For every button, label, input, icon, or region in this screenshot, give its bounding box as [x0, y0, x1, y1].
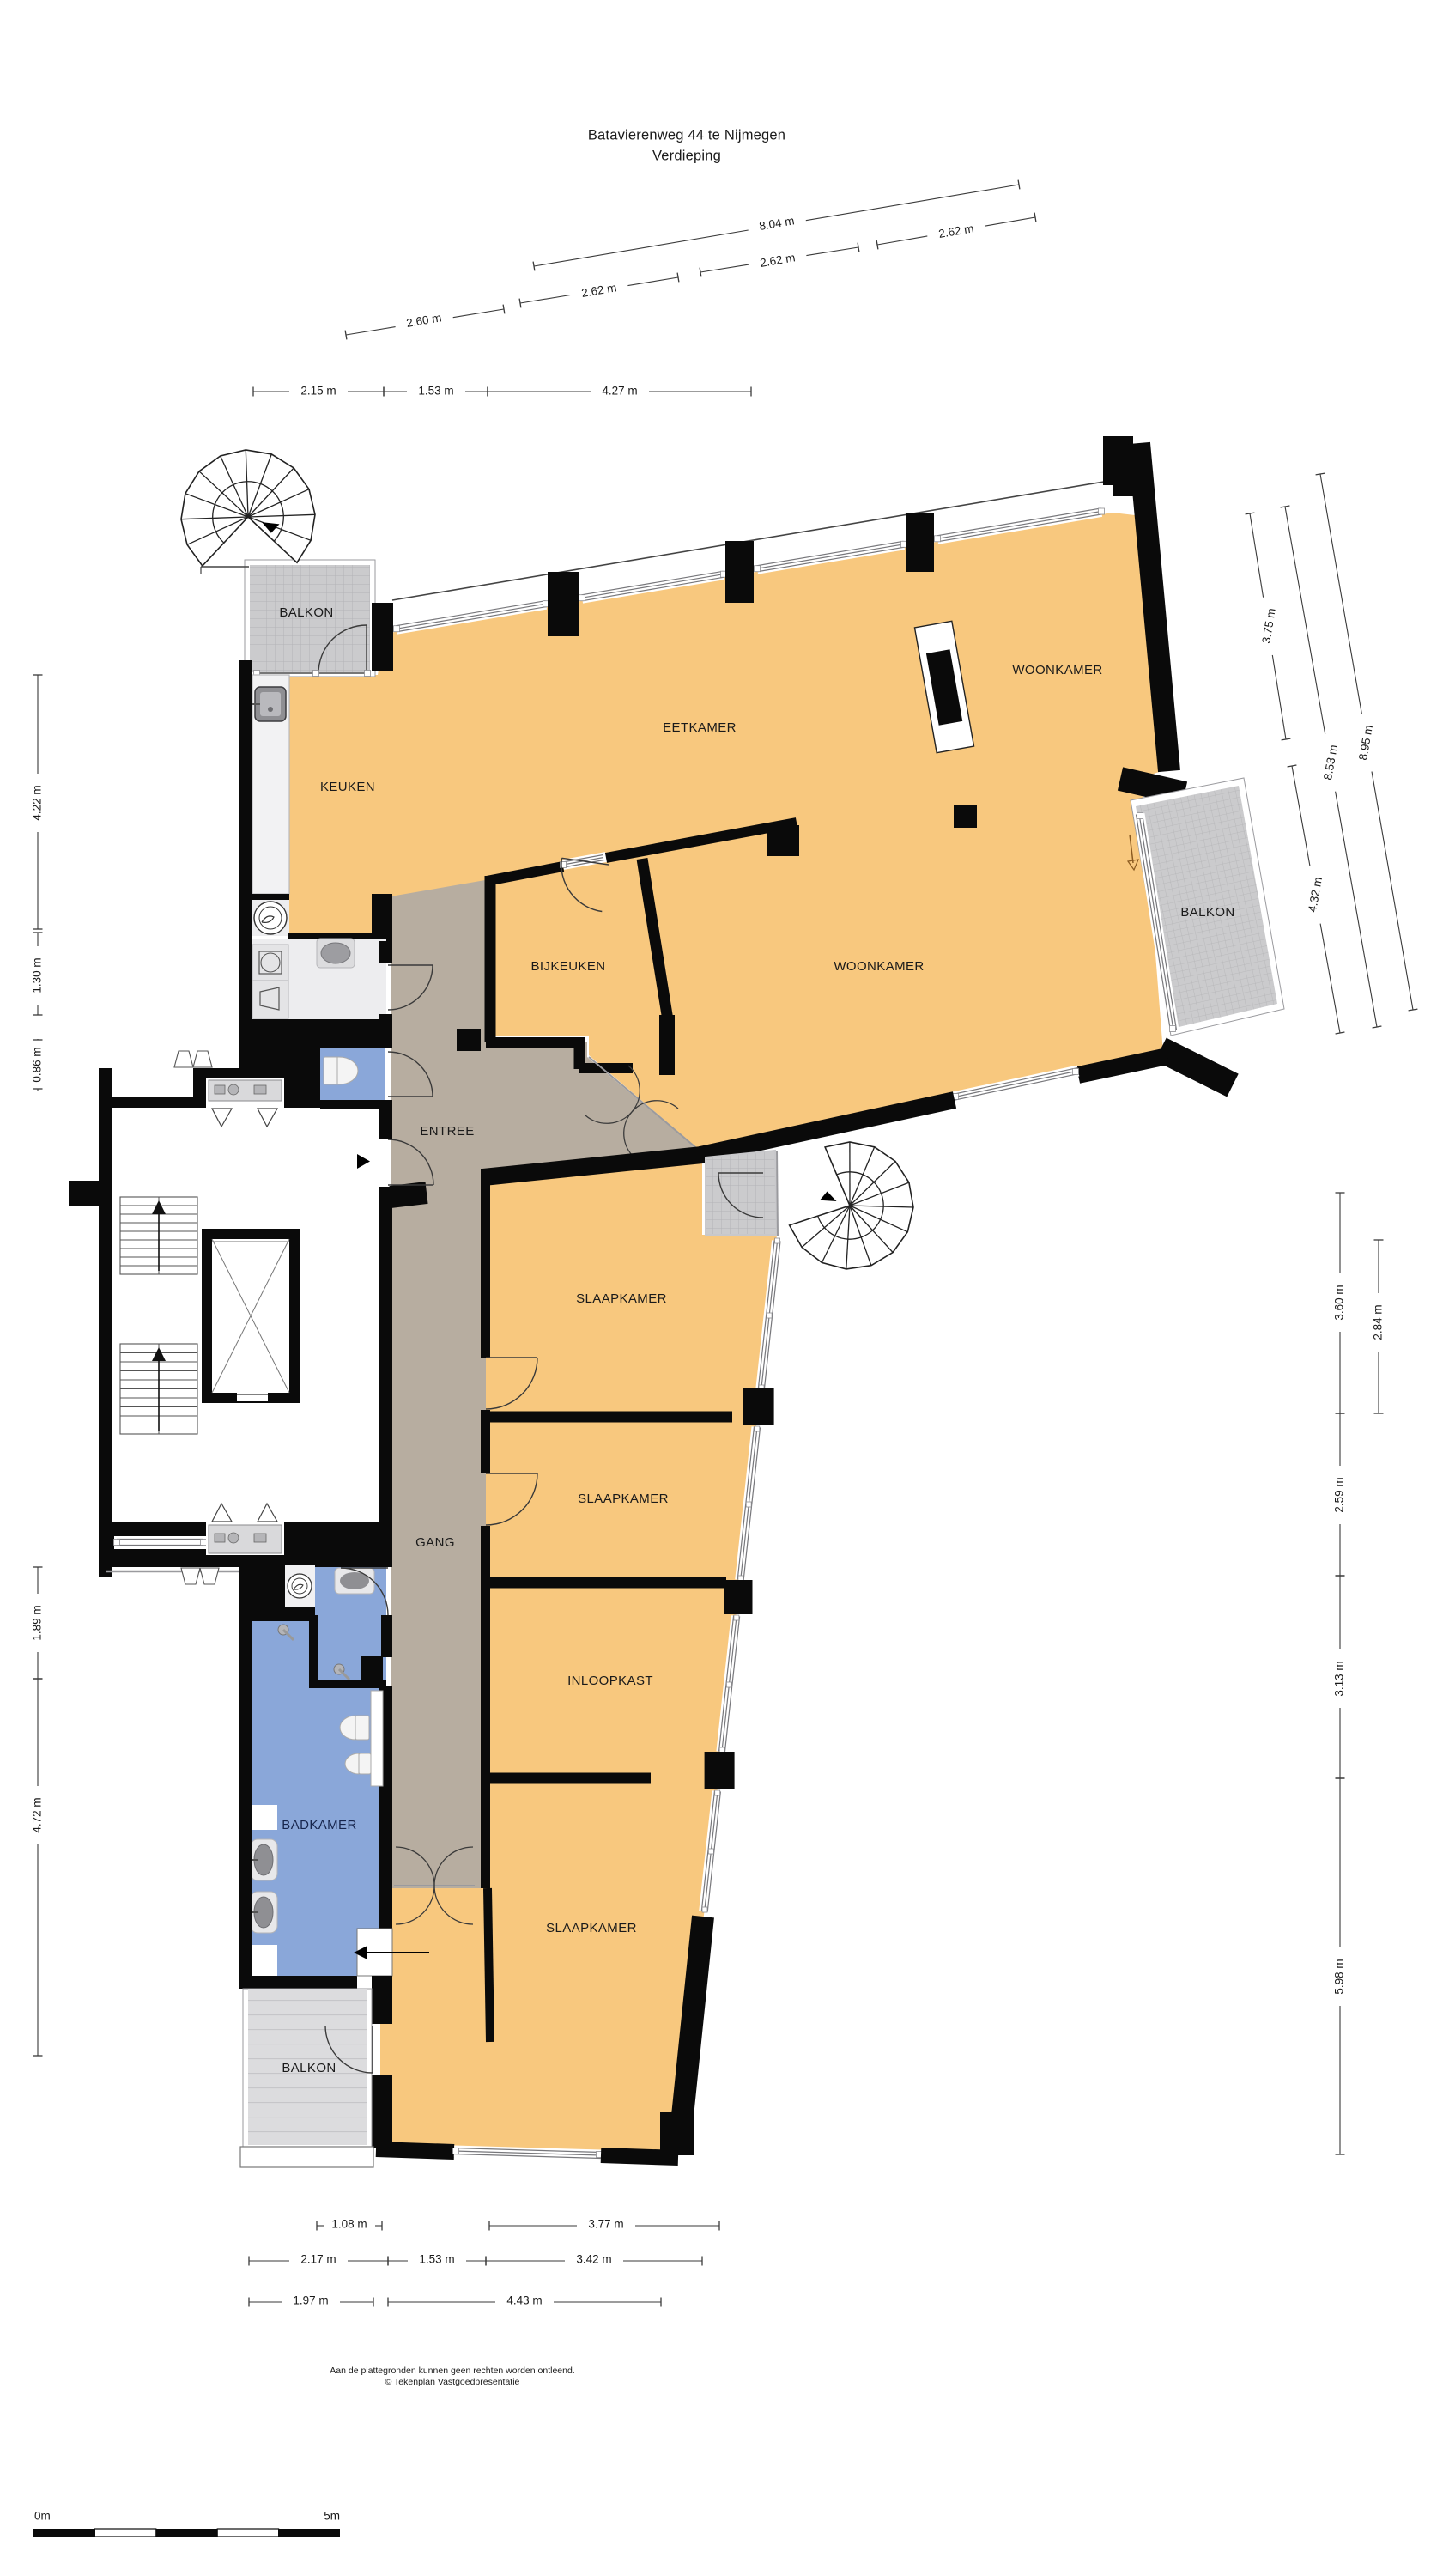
svg-text:WOONKAMER: WOONKAMER: [834, 959, 924, 974]
svg-text:EETKAMER: EETKAMER: [663, 720, 737, 735]
svg-text:1.30 m: 1.30 m: [31, 957, 44, 993]
svg-text:Verdieping: Verdieping: [652, 148, 721, 163]
svg-text:2.84 m: 2.84 m: [1372, 1304, 1385, 1340]
svg-text:SLAAPKAMER: SLAAPKAMER: [578, 1492, 669, 1506]
svg-text:2.17 m: 2.17 m: [300, 2253, 336, 2266]
svg-text:4.22 m: 4.22 m: [31, 785, 44, 820]
svg-text:1.89 m: 1.89 m: [31, 1605, 44, 1640]
svg-text:BALKON: BALKON: [279, 605, 333, 620]
svg-text:Batavierenweg 44 te Nijmegen: Batavierenweg 44 te Nijmegen: [588, 127, 785, 143]
svg-text:BIJKEUKEN: BIJKEUKEN: [531, 959, 606, 974]
svg-text:5.98 m: 5.98 m: [1333, 1959, 1346, 1994]
svg-text:WOONKAMER: WOONKAMER: [1012, 663, 1102, 677]
svg-text:1.08 m: 1.08 m: [331, 2218, 367, 2231]
svg-text:INLOOPKAST: INLOOPKAST: [567, 1674, 653, 1688]
svg-text:1.53 m: 1.53 m: [418, 385, 453, 398]
svg-text:ENTREE: ENTREE: [420, 1124, 474, 1139]
svg-text:BALKON: BALKON: [282, 2061, 336, 2075]
svg-text:GANG: GANG: [415, 1535, 455, 1550]
svg-text:1.53 m: 1.53 m: [419, 2253, 454, 2266]
svg-text:4.43 m: 4.43 m: [506, 2294, 542, 2307]
svg-text:3.42 m: 3.42 m: [576, 2253, 611, 2266]
svg-text:3.13 m: 3.13 m: [1333, 1661, 1346, 1696]
svg-text:2.59 m: 2.59 m: [1333, 1477, 1346, 1512]
svg-text:3.77 m: 3.77 m: [588, 2218, 623, 2231]
svg-text:SLAAPKAMER: SLAAPKAMER: [546, 1921, 637, 1935]
svg-text:0m: 0m: [34, 2510, 51, 2523]
svg-text:0.86 m: 0.86 m: [31, 1047, 44, 1082]
svg-text:1.97 m: 1.97 m: [293, 2294, 328, 2307]
svg-text:KEUKEN: KEUKEN: [320, 780, 375, 794]
svg-text:2.15 m: 2.15 m: [300, 385, 336, 398]
svg-text:Aan de plattegronden kunnen ge: Aan de plattegronden kunnen geen rechten…: [330, 2366, 574, 2376]
svg-text:BADKAMER: BADKAMER: [282, 1818, 356, 1832]
svg-text:© Tekenplan Vastgoedpresentati: © Tekenplan Vastgoedpresentatie: [385, 2377, 520, 2387]
svg-text:4.27 m: 4.27 m: [602, 385, 637, 398]
svg-text:5m: 5m: [324, 2510, 340, 2523]
svg-text:3.60 m: 3.60 m: [1333, 1285, 1346, 1320]
svg-text:BALKON: BALKON: [1180, 905, 1234, 920]
svg-text:SLAAPKAMER: SLAAPKAMER: [576, 1291, 667, 1306]
svg-text:4.72 m: 4.72 m: [31, 1797, 44, 1832]
